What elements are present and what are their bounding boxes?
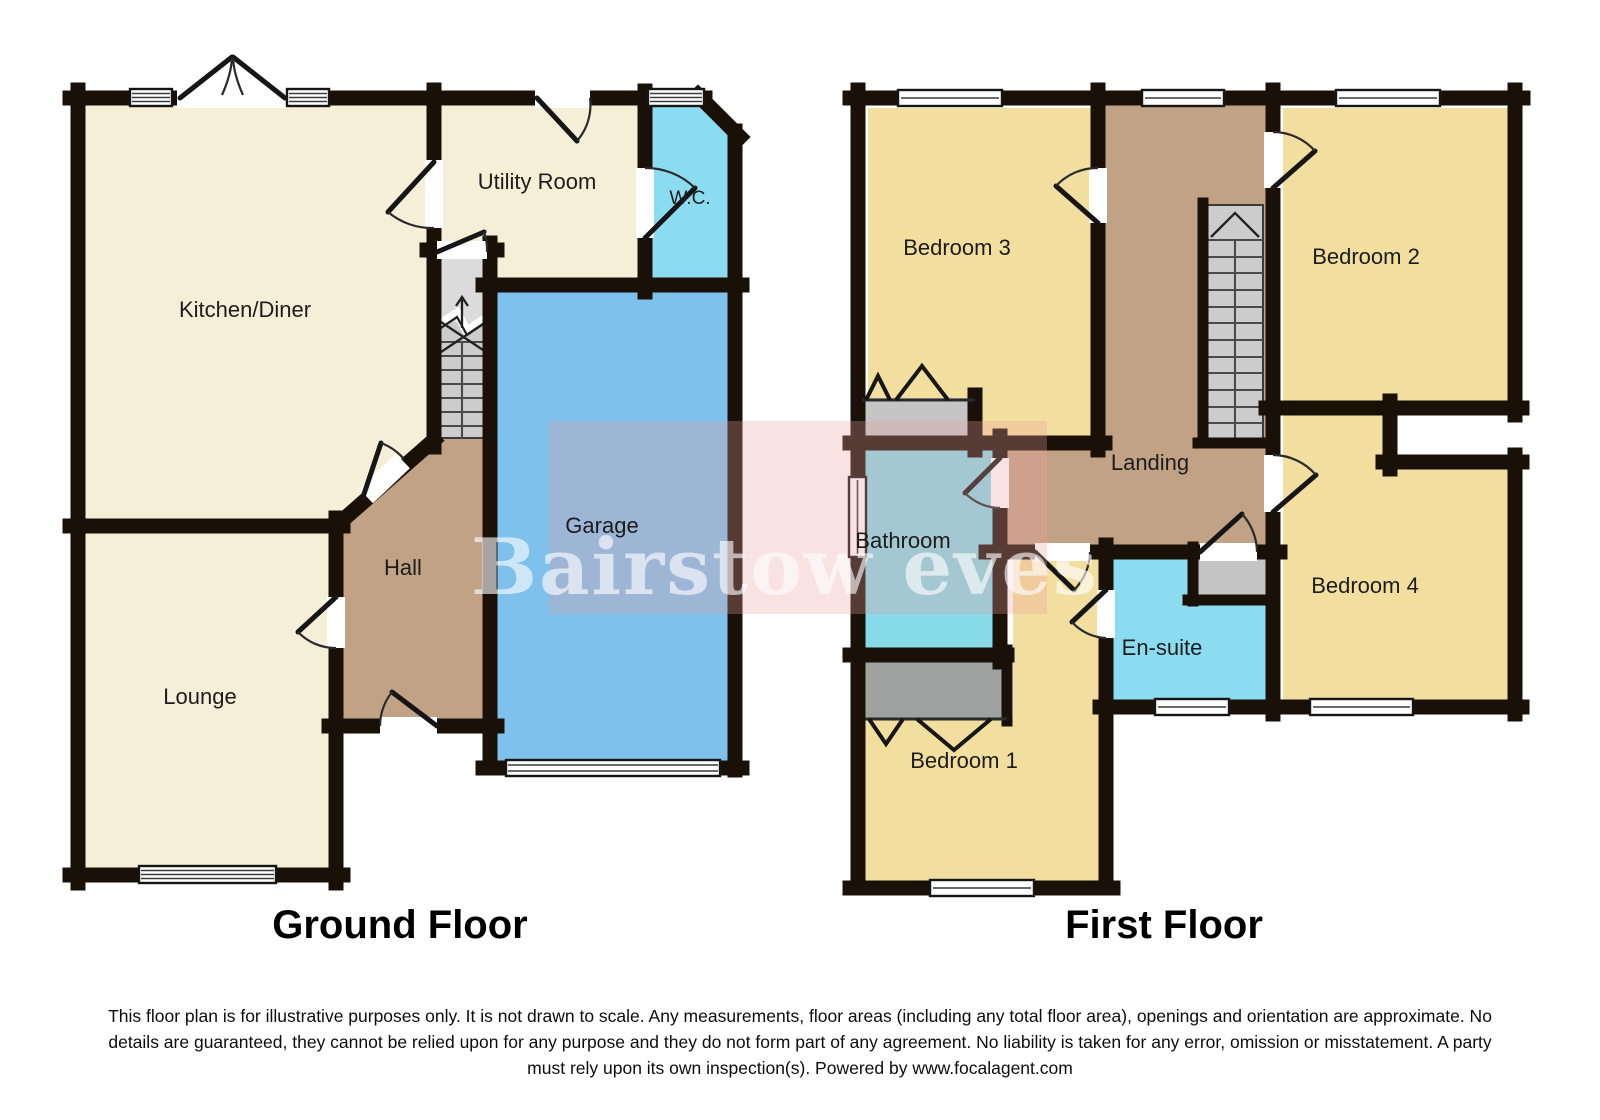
window-bedroom3	[898, 90, 1002, 106]
label-bedroom1: Bedroom 1	[910, 748, 1018, 773]
window-lounge	[139, 866, 276, 883]
label-ensuite: En-suite	[1122, 635, 1203, 660]
window-bedroom2	[1336, 90, 1440, 106]
garage-door	[506, 760, 720, 776]
disclaimer-line-1: This floor plan is for illustrative purp…	[108, 1006, 1492, 1026]
label-lounge: Lounge	[163, 684, 236, 709]
disclaimer: This floor plan is for illustrative purp…	[108, 1006, 1492, 1078]
disclaimer-line-2: details are guaranteed, they cannot be r…	[108, 1032, 1492, 1052]
label-landing: Landing	[1111, 450, 1189, 475]
window-kitchen-right	[287, 89, 329, 106]
floorplan-canvas: Bairstow eves Kitchen/Diner Utility Room…	[0, 0, 1600, 1120]
label-bedroom2: Bedroom 2	[1312, 244, 1420, 269]
window-kitchen-left	[130, 89, 172, 106]
label-bedroom3: Bedroom 3	[903, 235, 1011, 260]
first-floor-title: First Floor	[1065, 903, 1263, 947]
floorplan-page: Bairstow eves Kitchen/Diner Utility Room…	[0, 0, 1600, 1120]
window-bedroom1	[930, 880, 1034, 896]
stairs-first	[1207, 205, 1263, 443]
ground-floor-title: Ground Floor	[272, 903, 528, 947]
window-bedroom4	[1310, 699, 1413, 715]
label-garage: Garage	[565, 513, 638, 538]
label-utility-room: Utility Room	[478, 169, 597, 194]
room-bedroom4	[1283, 408, 1515, 707]
label-kitchen-diner: Kitchen/Diner	[179, 297, 311, 322]
label-bedroom4: Bedroom 4	[1311, 573, 1419, 598]
label-wc: W.C.	[669, 188, 710, 209]
wardrobe-bedroom1	[862, 655, 1007, 720]
window-ensuite	[1155, 699, 1229, 715]
label-bathroom: Bathroom	[855, 528, 950, 553]
window-wc	[648, 89, 704, 106]
label-hall: Hall	[384, 555, 422, 580]
disclaimer-line-3: must rely upon its own inspection(s). Po…	[527, 1058, 1073, 1078]
window-landing	[1142, 90, 1224, 106]
